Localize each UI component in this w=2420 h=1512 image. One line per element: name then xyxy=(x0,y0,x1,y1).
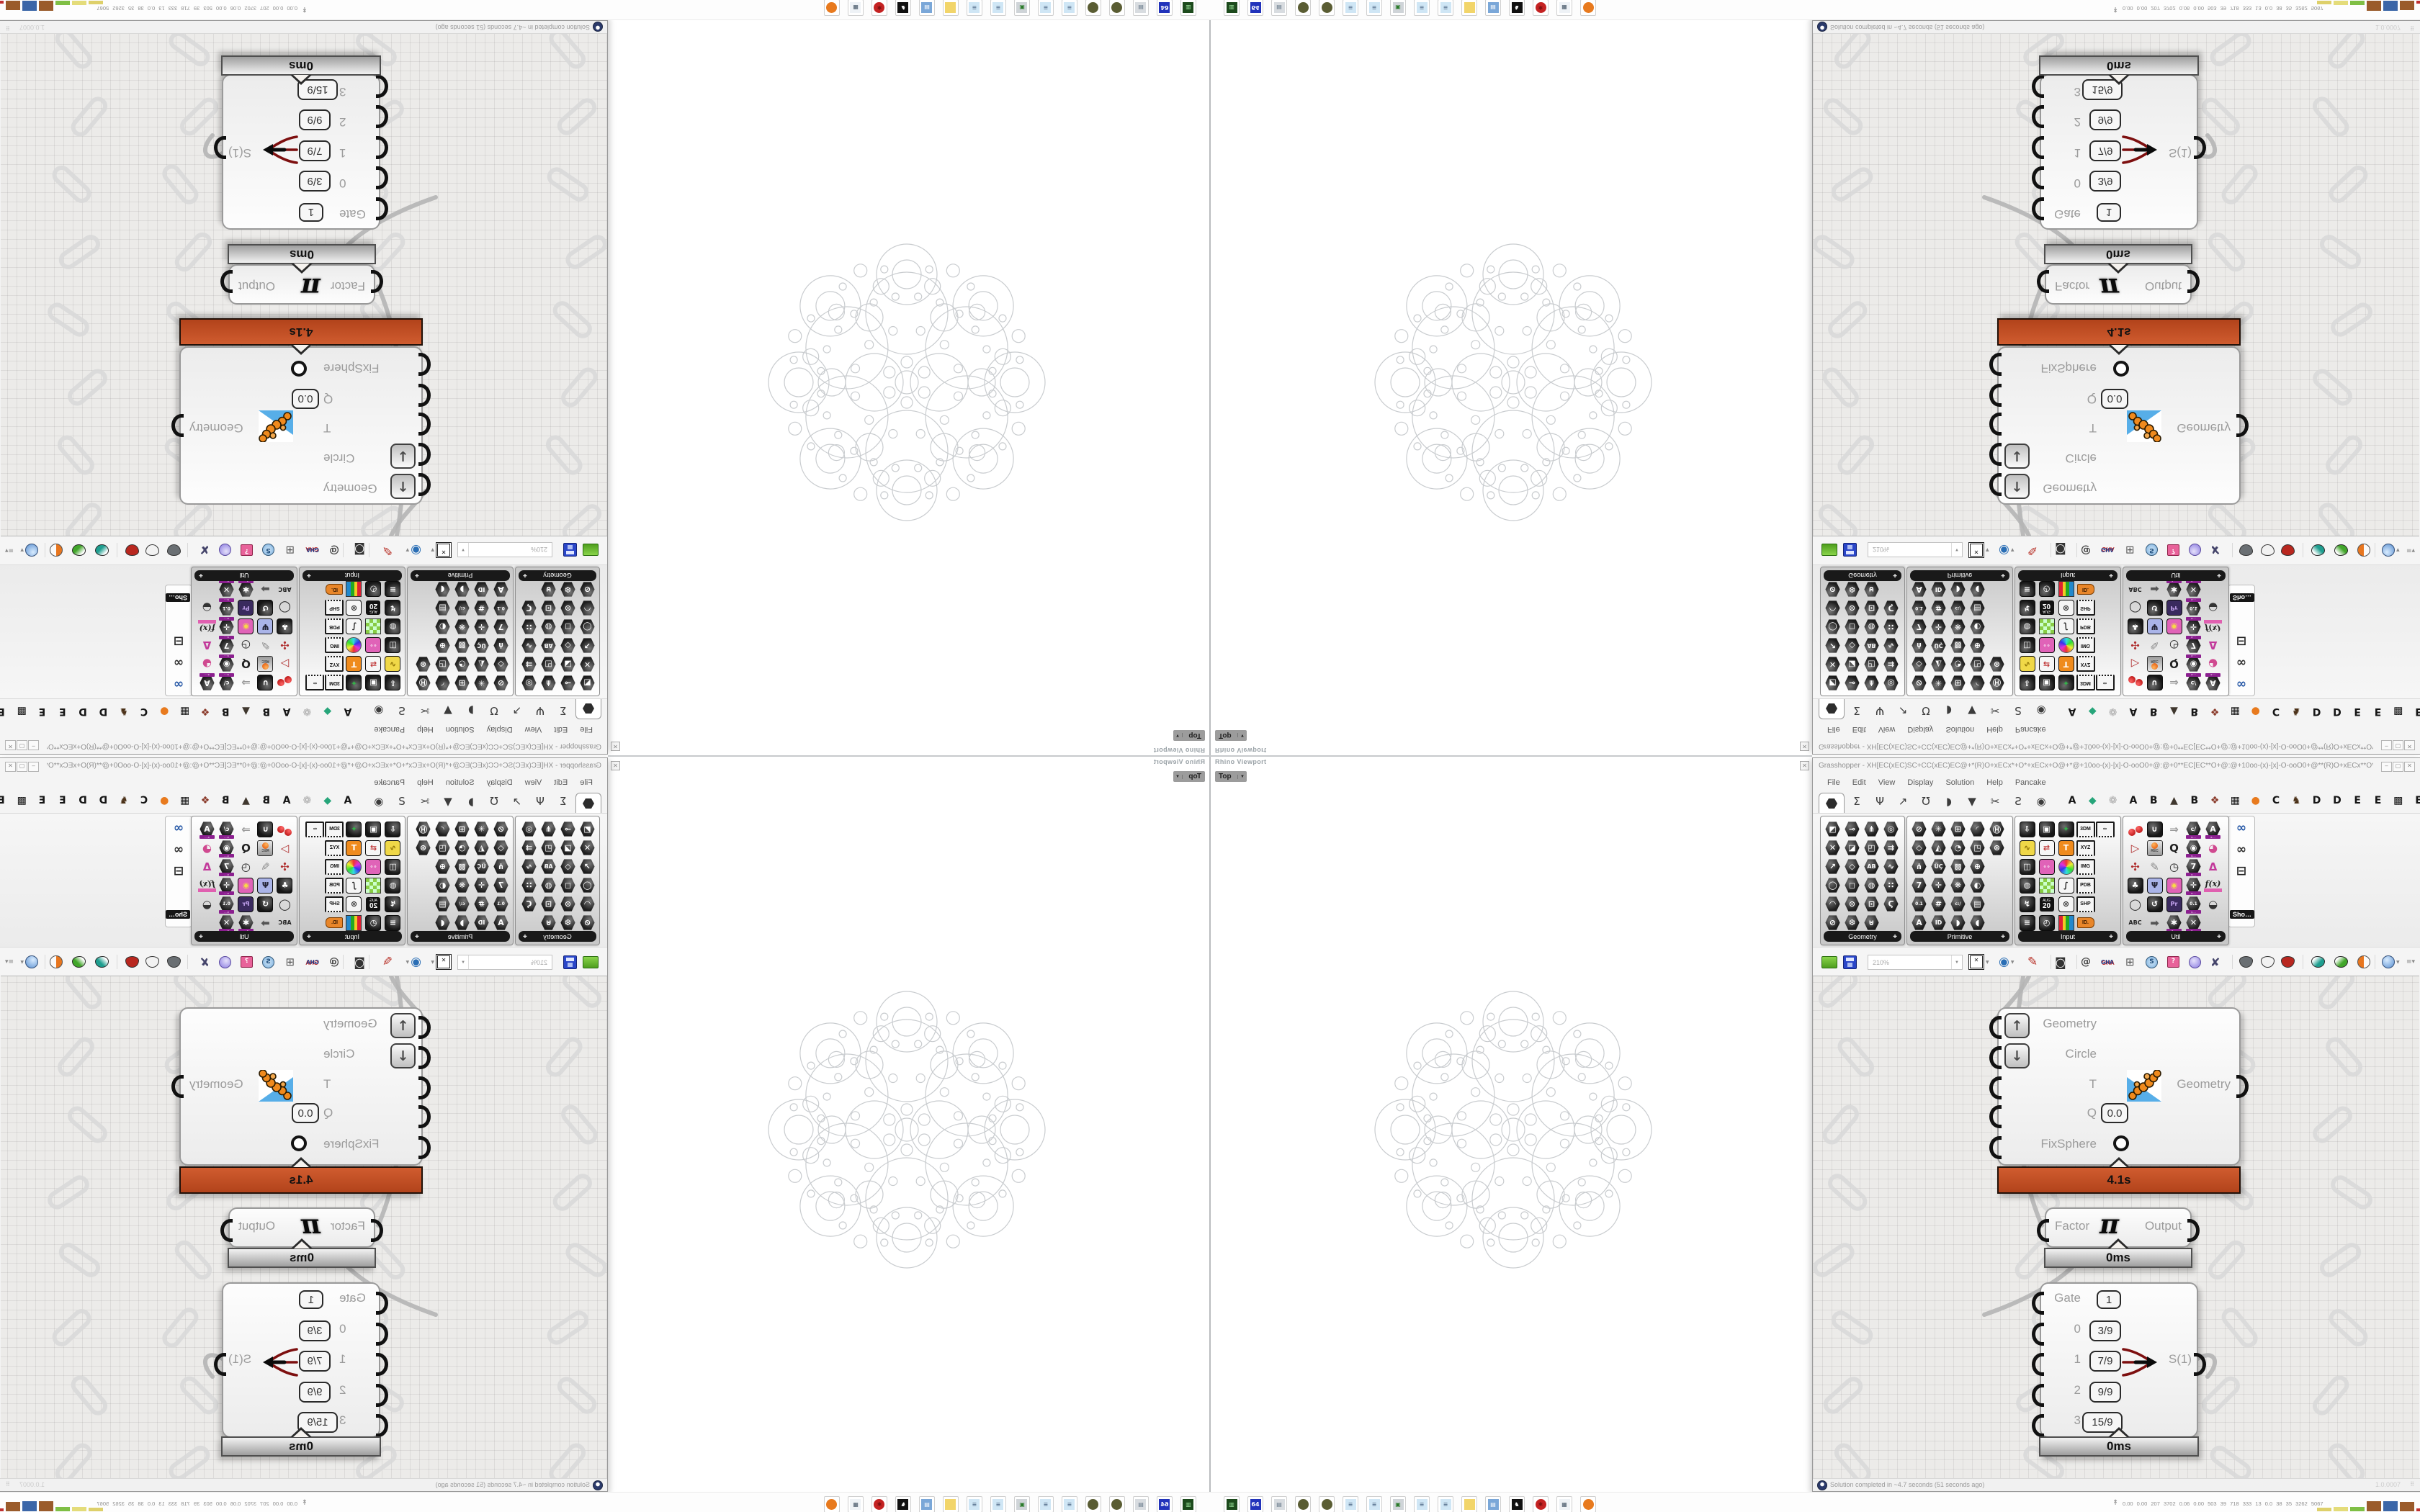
cat-icon[interactable]: ♞ xyxy=(1509,1496,1525,1512)
component-icon[interactable]: ↯ xyxy=(2020,896,2035,912)
component-icon[interactable]: ⊘ xyxy=(1825,915,1840,930)
component-icon[interactable]: 0.1 xyxy=(219,600,234,616)
component-icon[interactable]: ⊞ xyxy=(454,822,470,837)
palette-group-label[interactable]: Geometry✚ xyxy=(519,570,596,581)
component-icon[interactable]: ◕ xyxy=(2208,658,2218,671)
component-icon[interactable]: ⊚ xyxy=(2058,600,2074,616)
down-arrow-button[interactable]: ↓ xyxy=(2004,444,2030,469)
component-icon[interactable]: ◭ xyxy=(474,657,489,672)
goggles-info-icon[interactable]: ∞ xyxy=(2232,675,2251,693)
tab-plugin-13[interactable]: D xyxy=(2327,795,2347,806)
save-file-icon[interactable] xyxy=(563,954,577,970)
tab-plugin-4[interactable]: B xyxy=(256,795,277,806)
tab-params[interactable] xyxy=(575,793,601,814)
component-icon[interactable]: ≡ xyxy=(2020,582,2035,598)
tab-category-6[interactable]: ✂ xyxy=(414,704,436,717)
component-icon[interactable]: ✕ xyxy=(219,915,234,930)
id-tag-icon[interactable]: ID. xyxy=(2077,917,2094,928)
value-box[interactable]: 7/9 xyxy=(2089,140,2121,161)
component-icon[interactable]: ◯ xyxy=(580,619,595,634)
tab-plugin-10[interactable]: C xyxy=(134,795,154,806)
galapagos-icon[interactable]: ✘ xyxy=(200,954,210,970)
tab-plugin-0[interactable]: A xyxy=(2062,795,2082,806)
tab-category-8[interactable]: ◉ xyxy=(2030,795,2052,808)
titlebar[interactable]: Grasshopper - XH[EC(xEC)SC+CC(xEC)EC@+*(… xyxy=(1813,738,2420,754)
tab-plugin-10[interactable]: C xyxy=(134,706,154,717)
component-icon[interactable]: ⊘ xyxy=(493,675,508,690)
tab-plugin-16[interactable]: ▩ xyxy=(2388,795,2408,806)
tab-plugin-13[interactable]: D xyxy=(73,706,93,717)
presentation-board-icon[interactable]: ⊟ xyxy=(169,632,188,649)
chevron-down-icon[interactable]: ▼ xyxy=(2396,548,2400,553)
tab-category-6[interactable]: ✂ xyxy=(414,795,436,808)
drive-icon[interactable]: ▥ xyxy=(1180,0,1196,16)
file-type-stamp-icon[interactable]: 3DM xyxy=(326,675,344,691)
tab-category-7[interactable]: Ƨ xyxy=(391,704,413,717)
maximize-button[interactable]: ▢ xyxy=(17,762,27,772)
component-icon[interactable]: ⇉ xyxy=(521,840,537,855)
component-icon[interactable]: ↗ xyxy=(580,638,595,653)
monitor-icon[interactable]: ▣ xyxy=(1390,0,1406,16)
record-icon[interactable]: REC xyxy=(258,840,274,856)
tab-plugin-10[interactable]: C xyxy=(2266,706,2286,717)
component-icon[interactable]: Ⓗ xyxy=(416,675,431,690)
value-box[interactable]: 9/9 xyxy=(2089,1382,2121,1403)
value-box[interactable]: 3/9 xyxy=(299,171,331,192)
preview-wire-icon[interactable] xyxy=(145,954,159,970)
tab-category-8[interactable]: ◉ xyxy=(2030,704,2052,717)
preview-eye-icon[interactable]: ◉▼ xyxy=(1999,954,2014,970)
titlebar[interactable]: Grasshopper - XH[EC(xEC)SC+CC(xEC)EC@+*(… xyxy=(1813,758,2420,774)
component-icon[interactable]: ◔ xyxy=(454,840,470,855)
component-icon[interactable]: ◉ xyxy=(238,619,254,635)
component-icon[interactable]: ◴ xyxy=(2039,582,2055,598)
component-icon[interactable]: ▤ xyxy=(435,896,450,912)
component-icon[interactable]: ⋔ xyxy=(1864,675,1879,690)
palette-group-label[interactable]: Input✚ xyxy=(2018,570,2117,581)
file-type-stamp-icon[interactable]: PDB xyxy=(326,619,344,635)
tab-category-3[interactable]: Ʊ xyxy=(1915,704,1937,717)
component-icon[interactable]: ◍ xyxy=(541,878,556,893)
preview-shaded-icon[interactable] xyxy=(125,542,139,558)
tab-plugin-2[interactable]: ❁ xyxy=(297,706,317,717)
tab-plugin-9[interactable]: ● xyxy=(154,795,174,806)
close-button[interactable]: ✕ xyxy=(2404,762,2415,772)
tab-plugin-13[interactable]: D xyxy=(2327,706,2347,717)
component-icon[interactable]: ♣ xyxy=(2128,878,2143,894)
tab-plugin-5[interactable]: ▲ xyxy=(236,706,256,717)
down-arrow-button[interactable]: ↓ xyxy=(390,444,416,469)
component-icon[interactable]: ◻ xyxy=(1845,878,1860,893)
record-icon[interactable]: REC xyxy=(2147,840,2163,856)
component-icon[interactable]: ▷ xyxy=(2131,658,2140,671)
component-icon[interactable]: ▤ xyxy=(1970,600,1985,616)
preview-off-icon[interactable] xyxy=(2239,542,2253,558)
expand-icon[interactable]: ✚ xyxy=(2001,573,2005,579)
cherries-icon[interactable] xyxy=(2128,676,2143,690)
component-icon[interactable]: ◠ xyxy=(1825,896,1840,912)
folder-icon[interactable] xyxy=(943,0,959,16)
notepad-icon[interactable]: ≡ xyxy=(1343,1496,1358,1512)
component-icon[interactable]: ⊕ xyxy=(1970,638,1985,653)
viewport-close-button[interactable]: ✕ xyxy=(611,761,620,770)
chevron-down-icon[interactable]: ▼ xyxy=(20,960,24,965)
tab-plugin-6[interactable]: B xyxy=(215,706,236,717)
tab-category-3[interactable]: Ʊ xyxy=(483,795,505,808)
component-icon[interactable]: ◻ xyxy=(560,878,575,893)
component-icon[interactable]: Ψ xyxy=(258,619,274,635)
remote-control-icon[interactable]: @ xyxy=(329,542,339,558)
monitor-icon[interactable]: ▣ xyxy=(1014,0,1030,16)
component-icon[interactable]: ◩ xyxy=(1825,822,1840,837)
component-icon[interactable]: ◰ xyxy=(541,657,556,672)
preview-shaded-icon[interactable] xyxy=(125,954,139,970)
chevron-down-icon[interactable]: ▼ xyxy=(458,543,469,557)
save-file-icon[interactable] xyxy=(563,542,577,558)
component-icon[interactable]: ∿ xyxy=(1883,859,1899,874)
component-icon[interactable]: ⊘ xyxy=(580,582,595,597)
tab-plugin-16[interactable]: ▩ xyxy=(2388,706,2408,717)
calendar-icon[interactable]: AUG20 xyxy=(367,897,381,912)
galapagos-icon[interactable]: ✘ xyxy=(200,542,210,558)
component-icon[interactable]: A xyxy=(200,675,215,690)
component-icon[interactable]: Δ xyxy=(203,860,212,873)
circlepacking-component[interactable]: ↑ ↓ Geometry Circle T Q FixSphere 0.0 xyxy=(1997,346,2241,505)
rainbow-circle-icon[interactable] xyxy=(346,638,362,654)
id-tag-icon[interactable]: ID. xyxy=(326,917,344,928)
menu-edit[interactable]: Edit xyxy=(554,778,568,787)
component-icon[interactable]: c:/ xyxy=(454,600,470,616)
tab-category-0[interactable]: Σ xyxy=(1846,795,1868,808)
file-type-stamp-icon[interactable]: IMG xyxy=(2076,859,2095,875)
component-icon[interactable]: Ψ xyxy=(2147,878,2163,894)
component-icon[interactable]: ◪ xyxy=(1845,657,1860,672)
grasshopper-canvas[interactable]: ↑ ↓ Geometry Circle T Q FixSphere 0.0 xyxy=(1,33,607,536)
component-icon[interactable]: ÜÇ xyxy=(474,638,489,653)
component-icon[interactable]: ◒ xyxy=(2208,898,2218,911)
down-arrow-button[interactable]: ↓ xyxy=(390,1043,416,1068)
tab-params[interactable] xyxy=(1819,698,1845,719)
tab-category-3[interactable]: Ʊ xyxy=(1915,795,1937,808)
component-icon[interactable]: ✣ xyxy=(280,639,290,652)
menu-file[interactable]: File xyxy=(580,725,593,734)
file-type-stamp-icon[interactable]: 3DM xyxy=(326,822,344,837)
spray-icon[interactable]: ◙ xyxy=(354,542,365,558)
component-icon[interactable]: ABC xyxy=(2128,919,2141,926)
find-component-icon[interactable]: S xyxy=(2146,954,2158,970)
package-icon[interactable]: ? xyxy=(241,542,253,558)
printer-icon[interactable]: ▤ xyxy=(1271,0,1287,16)
palette-group-label[interactable]: Util✚ xyxy=(2126,931,2226,942)
component-icon[interactable]: # xyxy=(1931,600,1946,616)
component-icon[interactable]: ❆ xyxy=(560,582,575,597)
tab-category-4[interactable]: ◗ xyxy=(1938,704,1960,717)
component-icon[interactable]: ✛ xyxy=(2186,619,2201,634)
close-button[interactable]: ✕ xyxy=(2404,740,2415,750)
chevron-down-icon[interactable]: ▼ xyxy=(458,955,469,969)
component-icon[interactable]: ◉ xyxy=(2166,619,2182,635)
tab-plugin-15[interactable]: E xyxy=(2368,706,2388,717)
component-icon[interactable]: ∿ xyxy=(385,657,401,672)
idea-icon[interactable] xyxy=(2189,542,2201,558)
palette-group-label[interactable]: Primitive✚ xyxy=(1910,931,2009,942)
goggles-info-icon[interactable]: ∞ xyxy=(2232,819,2251,837)
preview-eye-icon[interactable]: ◉▼ xyxy=(406,954,421,970)
component-icon[interactable]: ❋ xyxy=(454,619,470,634)
spray-icon[interactable]: ◙ xyxy=(354,954,365,970)
sphere-orange-icon[interactable] xyxy=(2357,542,2370,558)
component-icon[interactable]: ∿ xyxy=(1883,638,1899,653)
component-icon[interactable]: Ⓗ xyxy=(1989,822,2004,837)
cat-icon[interactable]: ♞ xyxy=(895,0,911,16)
tab-plugin-1[interactable]: ◆ xyxy=(318,706,338,717)
notepad-icon[interactable]: ≡ xyxy=(1366,0,1382,16)
component-icon[interactable]: ◍ xyxy=(1864,619,1879,634)
component-icon[interactable]: ◒ xyxy=(2208,602,2218,615)
component-icon[interactable]: 7 xyxy=(1912,619,1927,634)
idea-icon[interactable] xyxy=(219,542,231,558)
component-icon[interactable]: ↺ xyxy=(2147,600,2163,616)
component-icon[interactable]: ◭ xyxy=(474,840,489,855)
tab-category-6[interactable]: ✂ xyxy=(1984,704,2006,717)
file-type-stamp-icon[interactable]: PDB xyxy=(2076,619,2095,635)
component-icon[interactable]: ↗ xyxy=(1825,859,1840,874)
tab-plugin-9[interactable]: ● xyxy=(2246,706,2266,717)
component-icon[interactable]: 7 xyxy=(493,878,508,893)
drive-icon[interactable]: ▥ xyxy=(1180,1496,1196,1512)
component-icon[interactable]: ⊘ xyxy=(1912,822,1927,837)
component-icon[interactable]: ∘∘ xyxy=(2039,638,2055,654)
component-icon[interactable]: ✎ xyxy=(2150,860,2159,873)
palette-group-label[interactable]: Input✚ xyxy=(302,570,402,581)
component-icon[interactable]: ▤ xyxy=(1970,896,1985,912)
component-icon[interactable]: ◇ xyxy=(1912,657,1927,672)
gate-value-box[interactable]: 1 xyxy=(2097,203,2121,222)
component-icon[interactable]: ◔ xyxy=(1950,657,1966,672)
component-icon[interactable]: ◭ xyxy=(1931,657,1946,672)
preview-shaded-icon[interactable] xyxy=(2281,542,2295,558)
component-icon[interactable]: A xyxy=(200,822,215,837)
component-icon[interactable]: AB xyxy=(541,638,556,653)
menu-solution[interactable]: Solution xyxy=(446,778,475,787)
tab-plugin-12[interactable]: D xyxy=(93,795,113,806)
idea-icon[interactable] xyxy=(2189,954,2201,970)
firefox-icon[interactable] xyxy=(824,0,840,16)
component-icon[interactable]: ◎ xyxy=(1883,822,1899,837)
spray-icon[interactable]: ◙ xyxy=(2055,542,2066,558)
faucet-green-icon[interactable] xyxy=(2334,542,2348,558)
component-icon[interactable]: ✛ xyxy=(1931,619,1946,634)
file-type-stamp-icon[interactable]: XYZ xyxy=(326,657,344,672)
find-component-icon[interactable]: S xyxy=(2146,542,2158,558)
expand-icon[interactable]: ✚ xyxy=(307,934,311,940)
open-file-icon[interactable] xyxy=(583,542,599,558)
tab-plugin-5[interactable]: ▲ xyxy=(2164,706,2184,717)
component-icon[interactable]: ∫ xyxy=(346,619,362,635)
component-icon[interactable]: ∿ xyxy=(521,859,537,874)
component-icon[interactable]: ✳ xyxy=(474,822,489,837)
menu-help[interactable]: Help xyxy=(1986,725,2003,734)
component-icon[interactable]: ⋔ xyxy=(541,675,556,690)
expand-icon[interactable]: ✚ xyxy=(1893,573,1897,579)
tab-plugin-3[interactable]: A xyxy=(2123,795,2143,806)
component-icon[interactable]: ◜ xyxy=(1970,675,1985,690)
component-icon[interactable]: ⊚ xyxy=(2058,896,2074,912)
stream-gate-component[interactable]: Gate 0 1 2 3 1 3/9 7/9 9/9 15/9 xyxy=(222,1282,380,1438)
component-icon[interactable]: ✳ xyxy=(1931,822,1946,837)
file-type-stamp-icon[interactable]: PDB xyxy=(326,878,344,894)
component-icon[interactable]: ◭ xyxy=(1931,840,1946,855)
record-icon[interactable]: REC xyxy=(2147,657,2163,672)
tab-plugin-3[interactable]: A xyxy=(277,706,297,717)
tab-category-5[interactable]: ▼ xyxy=(1961,795,1983,808)
window-icon[interactable]: ⊞ xyxy=(2125,542,2135,558)
component-icon[interactable]: ◯ xyxy=(1825,619,1840,634)
expand-icon[interactable]: ✚ xyxy=(2217,934,2221,940)
notepad-icon[interactable]: ≡ xyxy=(967,0,982,16)
component-icon[interactable]: ◰ xyxy=(1864,657,1879,672)
component-icon[interactable]: ◉ xyxy=(238,878,254,894)
menu-help[interactable]: Help xyxy=(417,778,434,787)
component-icon[interactable]: ⇄ xyxy=(366,840,382,856)
component-icon[interactable]: ◕ xyxy=(2208,842,2218,855)
expand-icon[interactable]: ✚ xyxy=(415,934,419,940)
component-icon[interactable]: ◯ xyxy=(279,898,291,911)
tab-category-0[interactable]: Σ xyxy=(552,704,574,717)
sphere-orange-icon[interactable] xyxy=(50,954,63,970)
component-icon[interactable]: ◴ xyxy=(366,582,382,598)
component-icon[interactable]: ⇄ xyxy=(366,657,382,672)
component-icon[interactable]: ◜ xyxy=(1970,822,1985,837)
component-icon[interactable]: ◉ xyxy=(219,657,234,672)
chevron-down-icon[interactable]: ▼ xyxy=(1986,960,1989,965)
green-checker-icon[interactable] xyxy=(366,878,382,894)
gate-value-box[interactable]: 1 xyxy=(2097,1290,2121,1309)
component-icon[interactable]: ⇄ xyxy=(2039,840,2055,856)
rainbow-circle-icon[interactable] xyxy=(2058,638,2074,654)
viewport-view-tab[interactable]: Top ▼ xyxy=(1173,771,1205,782)
menu-file[interactable]: File xyxy=(1827,778,1840,787)
component-icon[interactable]: ◗ xyxy=(454,582,470,597)
moss-ball-icon[interactable] xyxy=(1295,1496,1311,1512)
palette-group-label[interactable]: Util✚ xyxy=(194,570,294,581)
tab-plugin-8[interactable]: ▦ xyxy=(2225,795,2245,806)
component-icon[interactable]: ✦ xyxy=(346,822,362,837)
tab-category-1[interactable]: Ψ xyxy=(1869,795,1891,808)
open-file-icon[interactable] xyxy=(583,954,599,970)
tab-category-5[interactable]: ▼ xyxy=(1961,704,1983,717)
gha-assembly-icon[interactable]: GHA xyxy=(2101,542,2114,558)
value-box[interactable]: 7/9 xyxy=(2089,1351,2121,1372)
moss-ball-icon[interactable] xyxy=(1295,0,1311,16)
component-icon[interactable]: Ϛ xyxy=(521,600,537,616)
menu-file[interactable]: File xyxy=(1827,725,1840,734)
value-box[interactable]: 9/9 xyxy=(299,1382,331,1403)
component-icon[interactable]: ✱ xyxy=(238,582,254,597)
component-icon[interactable]: Ϛ xyxy=(1883,600,1899,616)
component-icon[interactable]: T xyxy=(346,840,362,856)
preview-wire-icon[interactable] xyxy=(145,542,159,558)
floppy64-icon[interactable]: 64 xyxy=(1157,0,1173,16)
component-icon[interactable]: # xyxy=(1931,896,1946,912)
component-icon[interactable]: 0.1 xyxy=(219,896,234,912)
goggles-info-icon[interactable]: ∞ xyxy=(169,819,188,837)
zoom-extents-icon[interactable]: ✕▼ xyxy=(431,542,452,558)
save-file-icon[interactable] xyxy=(1843,954,1857,970)
component-icon[interactable]: ❋ xyxy=(454,878,470,893)
green-checker-icon[interactable] xyxy=(2039,878,2055,894)
menu-display[interactable]: Display xyxy=(1907,778,1933,787)
component-icon[interactable]: T xyxy=(2058,657,2074,672)
window-icon[interactable]: ⊞ xyxy=(2125,954,2135,970)
component-icon[interactable]: ◖ xyxy=(1970,582,1985,597)
menu-help[interactable]: Help xyxy=(417,725,434,734)
component-icon[interactable]: ⋔ xyxy=(1912,859,1927,874)
component-icon[interactable]: ∘∘ xyxy=(366,638,382,654)
down-arrow-button[interactable]: ↓ xyxy=(2004,1043,2030,1068)
file-type-stamp-icon[interactable]: 3DM xyxy=(2076,822,2095,837)
component-icon[interactable]: 0.1 xyxy=(1912,600,1927,616)
file-type-stamp-icon[interactable]: XYZ xyxy=(2076,840,2095,856)
up-arrow-button[interactable]: ↑ xyxy=(2004,474,2030,499)
idea-icon[interactable] xyxy=(219,954,231,970)
rainbow-bars-icon[interactable] xyxy=(2058,582,2074,598)
zoom-combo[interactable]: 210%▼ xyxy=(457,955,552,970)
component-icon[interactable]: ∫ xyxy=(2058,878,2074,894)
component-icon[interactable]: ◇ xyxy=(1912,840,1927,855)
fixsphere-toggle[interactable] xyxy=(291,1135,307,1151)
component-icon[interactable]: ◖ xyxy=(435,582,450,597)
component-icon[interactable]: ∷ xyxy=(521,619,537,634)
zoom-combo[interactable]: 210%▼ xyxy=(457,542,552,557)
notepad-icon[interactable]: ≡ xyxy=(967,1496,982,1512)
folder-icon[interactable] xyxy=(1461,0,1477,16)
component-icon[interactable]: ⇩ xyxy=(2020,675,2035,691)
file-type-stamp-icon[interactable]: ∞ xyxy=(2096,822,2115,837)
tab-plugin-0[interactable]: A xyxy=(2062,706,2082,717)
palette-group-label[interactable]: Geometry✚ xyxy=(519,931,596,942)
component-icon[interactable]: ✛ xyxy=(219,619,234,634)
tab-plugin-4[interactable]: B xyxy=(256,706,277,717)
component-icon[interactable]: ⊕ xyxy=(435,859,450,874)
value-box[interactable]: 3/9 xyxy=(299,1320,331,1341)
component-icon[interactable]: ▣ xyxy=(2039,675,2055,691)
expand-icon[interactable]: ✚ xyxy=(199,934,203,940)
component-icon[interactable]: c/ xyxy=(219,675,234,690)
galapagos-icon[interactable]: ✘ xyxy=(2210,542,2220,558)
component-icon[interactable]: ✳ xyxy=(1931,675,1946,690)
component-icon[interactable]: ⊸ xyxy=(1845,675,1860,690)
chevron-down-icon[interactable]: ▼ xyxy=(1986,548,1989,553)
preview-eye-icon[interactable]: ◉▼ xyxy=(1999,542,2014,558)
component-icon[interactable]: ◜ xyxy=(435,822,450,837)
menu-solution[interactable]: Solution xyxy=(446,725,475,734)
tab-category-6[interactable]: ✂ xyxy=(1984,795,2006,808)
moss-ball-icon[interactable] xyxy=(1319,0,1335,16)
notepad-icon[interactable]: ≡ xyxy=(1438,1496,1453,1512)
palette-group-label[interactable]: Geometry✚ xyxy=(1824,570,1901,581)
component-icon[interactable]: ⊕ xyxy=(1970,859,1985,874)
component-icon[interactable]: ◠ xyxy=(1825,600,1840,616)
component-icon[interactable]: ◉ xyxy=(2186,657,2201,672)
presentation-board-icon[interactable]: ⊟ xyxy=(169,863,188,880)
file-type-stamp-icon[interactable]: 3DM xyxy=(2076,675,2095,691)
remote-control-icon[interactable]: @ xyxy=(2081,954,2091,970)
component-icon[interactable]: ◍ xyxy=(1864,878,1879,893)
monitor-icon[interactable]: ▣ xyxy=(1014,1496,1030,1512)
component-icon[interactable]: ◖ xyxy=(1970,915,1985,930)
tab-category-0[interactable]: Σ xyxy=(552,795,574,808)
